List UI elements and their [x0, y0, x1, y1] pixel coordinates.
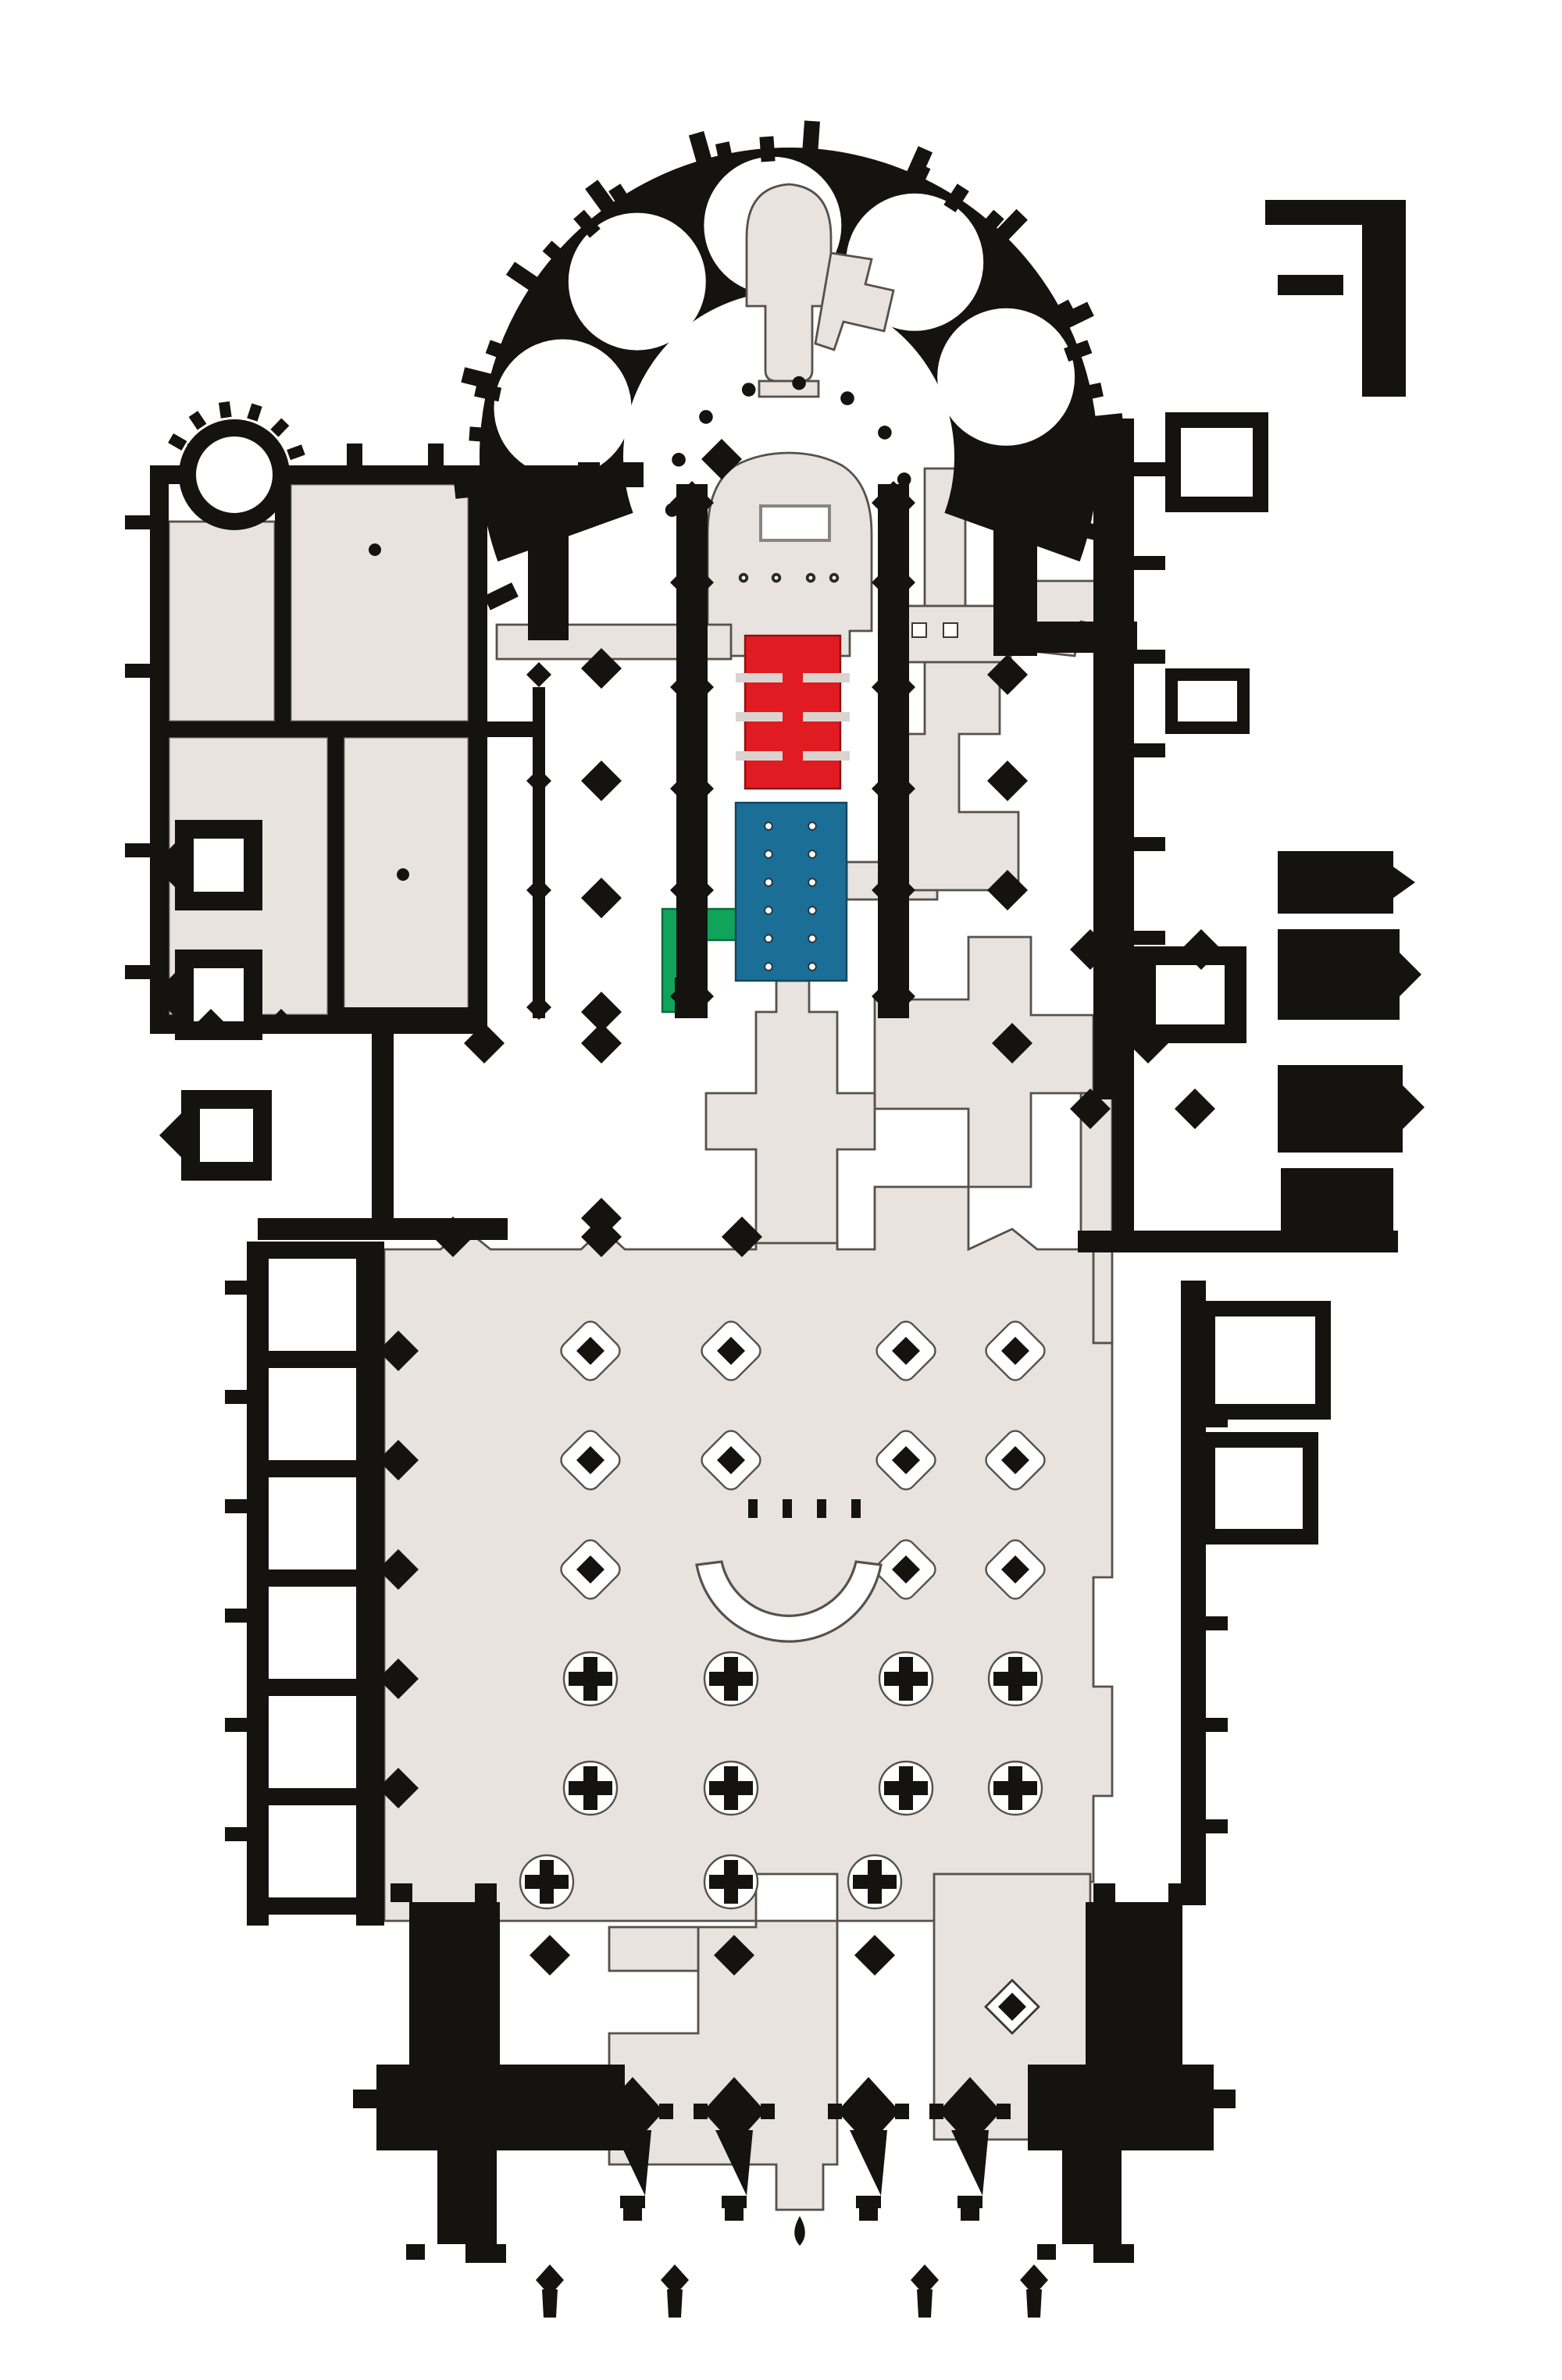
ambulatory-pier-square: [943, 623, 958, 637]
stall-dot: [765, 963, 772, 971]
dais-dot-center: [833, 576, 836, 580]
stall-dot: [808, 878, 816, 886]
stall-dot: [765, 935, 772, 942]
annex-partition: [328, 737, 344, 1015]
annex-room-a-floor: [291, 484, 469, 721]
screen-post: [783, 1499, 792, 1518]
facade-pier-nub: [761, 2104, 775, 2119]
axial-chapel-foot: [759, 381, 818, 397]
facade-pier-nub: [929, 2104, 943, 2119]
north-shoulder-wall: [528, 525, 569, 640]
annex-room-b-floor: [169, 522, 275, 721]
facade-pier-nub: [895, 2104, 909, 2119]
facade-pier-nub: [592, 2104, 606, 2119]
dais-dot-center: [809, 576, 813, 580]
hemicycle-column-dot: [742, 383, 756, 397]
stall-dot: [808, 822, 816, 830]
facade-pier-nub: [659, 2104, 673, 2119]
screen-post: [851, 1499, 861, 1518]
left-transept-chapels: [153, 820, 272, 1181]
stall-dot: [808, 935, 816, 942]
dais-dot-center: [775, 576, 779, 580]
outbuilding-wall: [1362, 225, 1406, 397]
facade-pier-foot: [725, 2208, 744, 2221]
facade-pier-foot: [859, 2208, 878, 2221]
stall-dot: [808, 907, 816, 914]
annex-room-dot: [369, 543, 381, 556]
hemicycle-column-dot: [840, 391, 854, 405]
court-screen-wall: [533, 687, 545, 1018]
hemicycle-column-dot: [897, 472, 911, 486]
annex-east-wall: [469, 465, 487, 1034]
chapter-apse-opening: [209, 469, 259, 487]
facade-pier-foot: [623, 2208, 642, 2221]
chevet-buttress-tick: [802, 120, 820, 152]
stall-dot: [765, 878, 772, 886]
choir-stalls-blue-area: [736, 803, 847, 981]
hemicycle-column-dot: [672, 453, 686, 467]
stall-dot: [765, 850, 772, 858]
dais-dot-center: [742, 576, 746, 580]
annex-partition: [275, 484, 291, 721]
outbuilding-wall: [1265, 200, 1406, 225]
facade-pier-foot: [961, 2208, 979, 2221]
cathedral-floor-plan: [0, 0, 1562, 2380]
chapel-buttress-tick: [759, 136, 775, 162]
stall-dot: [808, 963, 816, 971]
annex-west-wall: [150, 465, 169, 1034]
hemicycle-column-dot: [699, 410, 713, 424]
radiating-chapel-interior: [494, 339, 631, 476]
hemicycle-column-dot: [792, 376, 806, 390]
facade-pier-nub: [997, 2104, 1011, 2119]
ambulatory-pier-square: [912, 623, 926, 637]
hemicycle-column-dot: [665, 503, 679, 517]
chapel-buttress-tick: [469, 426, 494, 442]
floor-plan-stage: [0, 0, 1562, 2380]
chapter-apse-tick: [219, 401, 232, 419]
radiating-chapel-interior: [937, 308, 1075, 446]
screen-post: [748, 1499, 758, 1518]
outbuilding-wall: [1278, 275, 1343, 295]
annex-room-dot: [397, 868, 409, 881]
facade-pier-nub: [828, 2104, 842, 2119]
stall-dot: [765, 822, 772, 830]
vestibule-side-room-floor: [609, 1927, 698, 1971]
stall-dot: [808, 850, 816, 858]
hemicycle-column-dot: [878, 426, 892, 440]
sanctuary-platform: [708, 453, 872, 656]
altar-plaque: [761, 506, 829, 540]
east-chapel-wall: [1093, 419, 1134, 1099]
left-transept-wall: [372, 1028, 394, 1224]
facade-pier-nub: [694, 2104, 708, 2119]
stall-dot: [765, 907, 772, 914]
screen-post: [817, 1499, 826, 1518]
annex-cross-wall: [169, 721, 469, 737]
